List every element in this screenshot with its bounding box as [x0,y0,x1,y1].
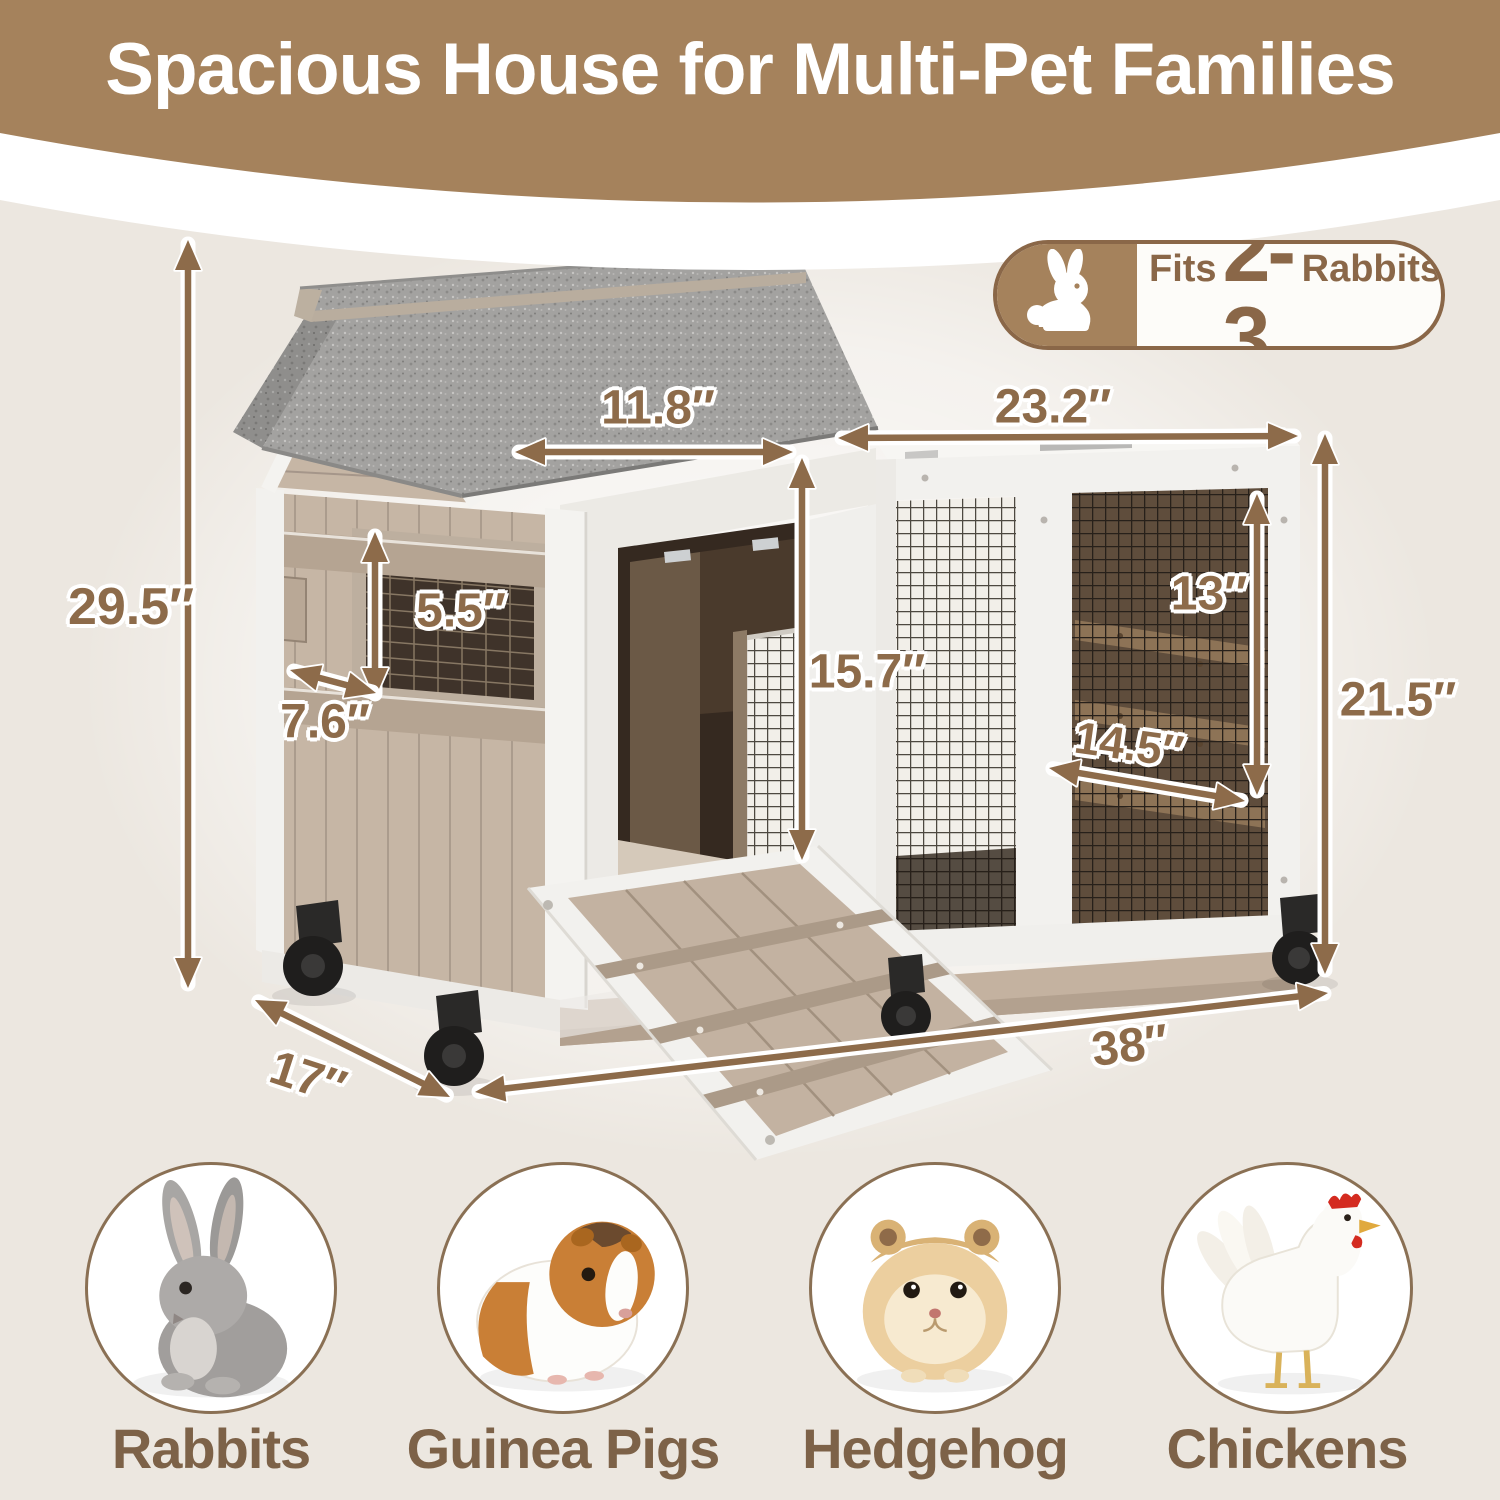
dim-run-door-height: 13″ [1171,567,1247,622]
dim-window-height: 5.5″ [416,584,506,639]
dim-door-height: 15.7″ [809,645,925,700]
badge-icon-area [997,244,1137,346]
rabbit-icon [88,1165,334,1411]
chicken-icon [1164,1165,1410,1411]
page-title: Spacious House for Multi-Pet Families [0,28,1500,111]
pet-circle-rabbits [85,1162,337,1414]
dim-run-top-width: 23.2″ [995,380,1111,435]
badge-count: 2-3 [1223,240,1296,350]
pet-circle-hedgehog [809,1162,1061,1414]
product-infographic: Spacious House for Multi-Pet Families Fi… [0,0,1500,1500]
pet-label-rabbits: Rabbits [112,1416,310,1481]
dim-run-height: 21.5″ [1340,673,1456,728]
badge-text: Fits 2-3 Rabbits [1149,240,1441,350]
dim-overall-height: 29.5″ [68,577,194,637]
dim-window-width: 7.6″ [280,695,370,750]
pet-circle-chickens [1161,1162,1413,1414]
pet-label-hedgehog: Hedgehog [802,1416,1068,1481]
dim-overall-length: 38″ [1089,1014,1172,1078]
hamster-icon [812,1165,1058,1411]
badge-fits-label: Fits [1149,248,1217,291]
guinea-pig-icon [440,1165,686,1411]
badge-animal-label: Rabbits [1302,248,1441,291]
rabbit-icon [1019,249,1115,341]
pet-circle-guinea-pigs [437,1162,689,1414]
pet-label-chickens: Chickens [1167,1416,1408,1481]
pet-label-guinea-pigs: Guinea Pigs [407,1416,720,1481]
dim-door-width: 11.8″ [601,381,715,436]
fits-rabbits-badge: Fits 2-3 Rabbits [993,240,1445,350]
